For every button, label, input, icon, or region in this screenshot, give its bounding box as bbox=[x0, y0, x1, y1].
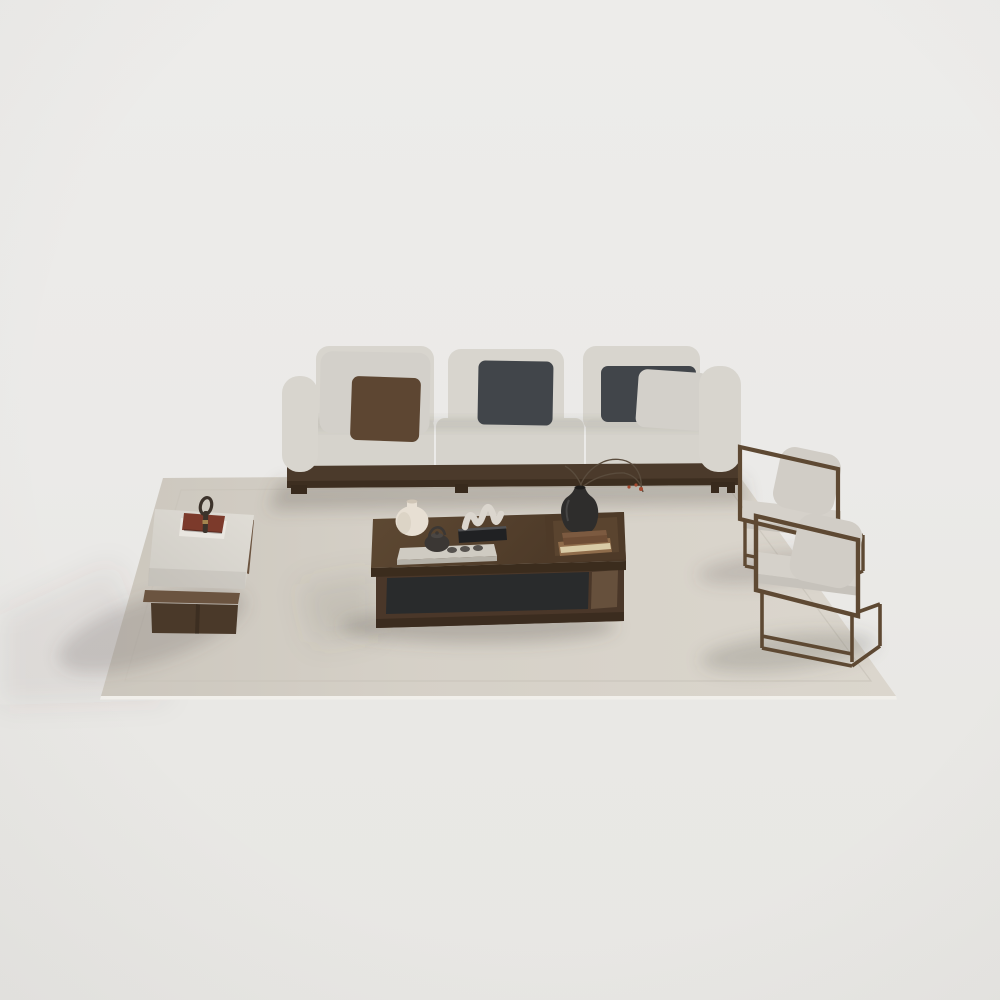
render-stage bbox=[0, 0, 1000, 1000]
vignette-overlay bbox=[0, 0, 1000, 1000]
scene-render bbox=[0, 0, 1000, 1000]
